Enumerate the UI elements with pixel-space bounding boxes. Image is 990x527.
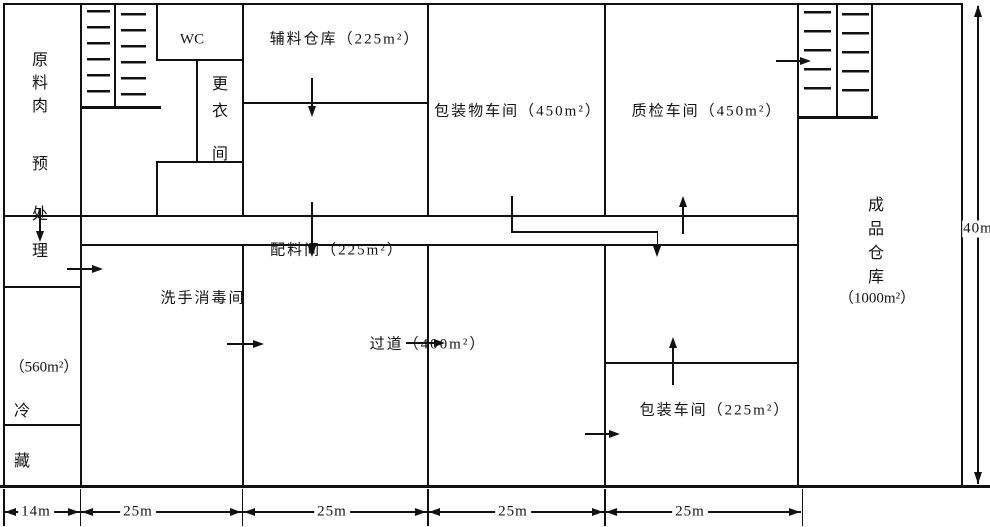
dim-label-25m-2: 25m (314, 504, 350, 521)
flow-arrow-handwash-to-passage-head-icon (253, 340, 264, 348)
dim-label-14m: 14m (18, 504, 54, 521)
wall-right (961, 3, 963, 487)
flow-arrow-handwash-to-passage-icon (227, 343, 255, 345)
flow-arrow-auxiliary-down-icon (311, 78, 313, 108)
flow-arrow-to-finished-goods-icon (776, 60, 802, 62)
leftcol-divider-2 (3, 424, 82, 426)
room-label-wc: WC (180, 32, 204, 49)
dim-arrow-icon (415, 508, 426, 516)
flow-arrow-to-handwash-head-icon (92, 265, 103, 273)
flow-arrow-to-packing-head-icon (609, 430, 620, 438)
stairs-left-bottom (81, 106, 161, 109)
leftcol-divider-1 (3, 286, 82, 288)
wc-bottom-wall (156, 59, 244, 61)
flow-arrow-step-down-icon (657, 232, 659, 247)
room-label-cold-storage-char1: 冷 (13, 400, 31, 423)
flow-arrow-step-down-head-icon (653, 246, 661, 257)
room-label-raw-meat-line1: 原料肉 (31, 49, 49, 118)
dim-arrow-icon (429, 508, 440, 516)
dim-arrow-icon (244, 508, 255, 516)
stairs-left-rungs-b (121, 13, 146, 105)
stairs-right-midrail (836, 3, 838, 118)
dim-arrow-icon (82, 508, 93, 516)
room-label-ingredient-room: 配料间（225m²） (270, 239, 404, 260)
corridor-step-vertical (511, 196, 513, 233)
dim-line-seg1 (81, 511, 242, 513)
room-label-changing-room-line1: 更衣 (211, 71, 229, 125)
dim-arrow-icon (974, 5, 982, 17)
dim-arrow-icon (230, 508, 241, 516)
dim-label-25m-4: 25m (672, 504, 708, 521)
wall-below-changing-room (156, 161, 158, 216)
flow-arrow-to-qc-icon (682, 206, 684, 234)
flow-arrow-to-handwash-icon (67, 268, 93, 270)
wall-v428-upper (427, 3, 429, 216)
room-label-packing-workshop: 包装车间（225m²） (640, 399, 791, 420)
corridor-step-horizontal (511, 231, 658, 233)
room-label-finished-goods-area: （1000m²） (839, 287, 915, 308)
corridor-top-wall (3, 215, 798, 217)
dim-tick-1 (80, 489, 82, 526)
dim-arrow-icon (606, 508, 617, 516)
dim-arrow-icon (789, 508, 800, 516)
wall-top (3, 3, 963, 5)
room-label-cold-storage-area: （560m²） (10, 356, 79, 377)
room-label-raw-meat-line3: 理 (31, 240, 49, 263)
flow-arrow-packing-up-head-icon (669, 337, 677, 348)
auxiliary-warehouse-bottom-wall (242, 102, 428, 104)
dim-line-right (977, 6, 979, 484)
room-label-cold-storage-char2: 藏 (13, 450, 31, 473)
dim-arrow-icon (974, 472, 982, 484)
room-label-raw-meat-line2: 预处 (31, 140, 49, 240)
wall-v243-upper (242, 3, 244, 216)
flow-arrow-auxiliary-down-head-icon (308, 106, 316, 117)
wall-v605-lower (604, 244, 606, 488)
dim-arrow-icon (592, 508, 603, 516)
wall-v243-lower (242, 244, 244, 488)
dim-label-25m-3: 25m (495, 504, 531, 521)
stairs-left-rungs-a (87, 10, 110, 102)
room-label-handwash-room: 洗手消毒间 (160, 287, 245, 308)
room-label-auxiliary-warehouse: 辅料仓库（225m²） (270, 28, 421, 49)
factory-floor-plan: 原料肉 预处 理 （560m²） 冷 藏 WC 更衣 间 辅料仓库（225m²）… (0, 0, 990, 527)
flow-arrow-packing-up-icon (672, 347, 674, 385)
wall-left (3, 3, 5, 487)
changing-room-left-wall (196, 60, 198, 162)
stairs-right-rungs-b (842, 13, 869, 107)
packing-workshop-top-wall (605, 362, 798, 364)
room-label-changing-room-line2: 间 (211, 143, 229, 166)
dim-tick-2 (242, 489, 244, 526)
dim-label-40m: 40m (962, 221, 990, 238)
wc-left-wall (156, 3, 158, 60)
flow-arrow-to-packing-icon (585, 433, 611, 435)
corridor-bottom-wall (82, 244, 798, 246)
flow-arrow-to-qc-head-icon (679, 196, 687, 207)
room-label-corridor: 过道（400m²） (370, 333, 487, 354)
room-label-finished-goods-vertical: 成品仓库 (867, 194, 885, 290)
room-label-qc-workshop: 质检车间（450m²） (632, 100, 783, 121)
wall-bottom (0, 485, 990, 488)
wall-v428-lower (427, 244, 429, 488)
dim-label-25m-1: 25m (120, 504, 156, 521)
changing-room-bottom-wall (156, 161, 244, 163)
room-label-packaging-material-workshop: 包装物车间（450m²） (434, 100, 602, 121)
wall-v605-upper (604, 3, 606, 216)
flow-arrow-to-finished-goods-head-icon (800, 57, 811, 65)
dim-tick-5 (802, 489, 804, 526)
stairs-left-midrail (114, 3, 116, 108)
stairs-right-rail (871, 3, 873, 118)
dim-arrow-icon (5, 508, 16, 516)
stairs-right-bottom (798, 116, 878, 119)
dim-arrow-icon (68, 508, 79, 516)
